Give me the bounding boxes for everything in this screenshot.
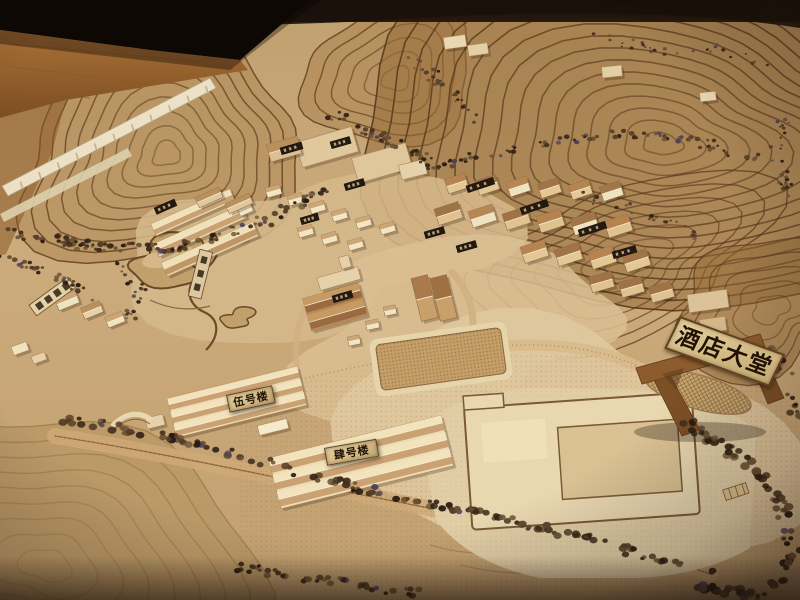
model-terrain-illustration — [0, 0, 800, 600]
sign-building-no4-text: 肆号楼 — [333, 444, 370, 461]
vignette — [0, 0, 800, 600]
scale-model-photo: 酒店大堂 伍号楼 肆号楼 — [0, 0, 800, 600]
sign-building-no5-text: 伍号楼 — [232, 390, 270, 408]
